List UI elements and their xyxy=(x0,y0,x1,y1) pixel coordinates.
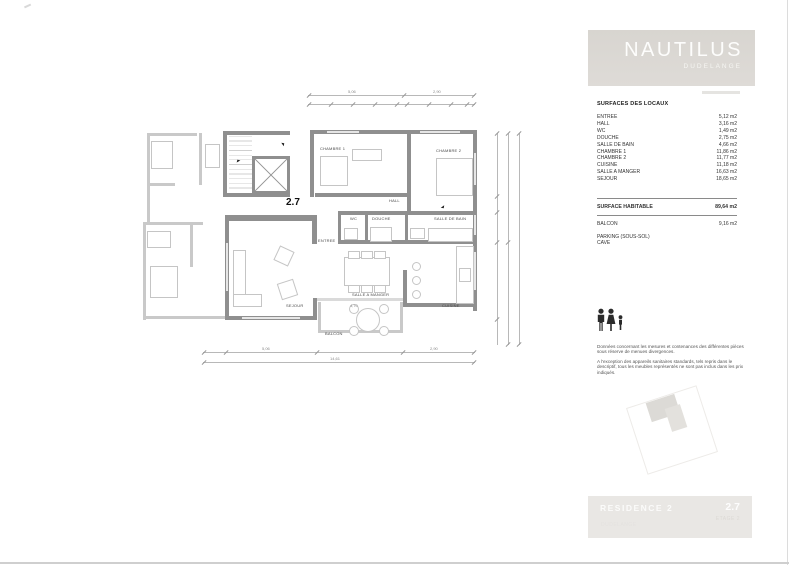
dim-line xyxy=(519,133,520,345)
room-label: CHAMBRE 1 xyxy=(320,146,345,151)
wall-segment xyxy=(405,214,408,240)
room-area: 11,86 m2 xyxy=(717,149,737,156)
table-row: DOUCHE2,75 m2 xyxy=(597,135,737,142)
dim-line xyxy=(308,95,475,96)
wall-segment xyxy=(313,298,317,320)
window xyxy=(327,131,359,134)
room-name: SEJOUR xyxy=(597,176,617,183)
balcony-chair xyxy=(379,326,389,336)
room-name: HALL xyxy=(597,121,610,128)
room-label: HALL xyxy=(389,198,400,203)
wc-fixture xyxy=(344,228,358,240)
table-row: SEJOUR18,65 m2 xyxy=(597,176,737,183)
unit-number: 2.7 xyxy=(725,501,740,513)
neighbour-furniture xyxy=(205,144,220,168)
wall-segment xyxy=(147,133,150,188)
balcony-dim: 4,70 xyxy=(350,303,358,308)
balcony-chair xyxy=(349,326,359,336)
surfaces-table: ENTREE5,12 m2 HALL3,16 m2 WC1,49 m2 DOUC… xyxy=(597,114,737,183)
bed-2 xyxy=(436,158,473,196)
table-row: SALLE A MANGER16,63 m2 xyxy=(597,169,737,176)
dim-label-total: 14,61 xyxy=(330,356,340,361)
kitchen-stool xyxy=(412,290,421,299)
room-area: 2,75 m2 xyxy=(719,135,737,142)
note-paragraph: Données concernant les mesures et conten… xyxy=(597,344,750,355)
residence-label: RESIDENCE 2 xyxy=(600,503,673,513)
wall-segment xyxy=(365,214,368,240)
wall-segment xyxy=(143,222,203,225)
dim-tick xyxy=(472,93,477,98)
kitchen-stool xyxy=(412,262,421,271)
dim-tick xyxy=(472,360,477,365)
dim-label: 2,90 xyxy=(430,346,438,351)
wall-segment xyxy=(147,133,197,136)
room-label: SALLE A MANGER xyxy=(352,292,389,297)
room-label: SALLE DE BAIN xyxy=(434,216,466,221)
room-name: SALLE DE BAIN xyxy=(597,142,634,149)
room-name: WC xyxy=(597,128,605,135)
balcon-row: BALCON9,16 m2 xyxy=(597,221,737,228)
shower-tray xyxy=(370,227,392,242)
room-label: ENTREE xyxy=(318,238,335,243)
wall-segment xyxy=(225,215,317,221)
dim-line xyxy=(497,133,498,345)
window xyxy=(420,131,460,134)
table-row: SALLE DE BAIN4,66 m2 xyxy=(597,142,737,149)
footer-city-label: DUDELANGE xyxy=(601,522,637,528)
wall-segment xyxy=(338,211,341,244)
wall-segment xyxy=(190,222,193,267)
wall-segment xyxy=(147,183,175,186)
kitchen-sink xyxy=(459,268,471,282)
window-wall xyxy=(317,298,403,301)
occupants-icon xyxy=(596,308,636,339)
window xyxy=(474,215,477,235)
habitable-label: SURFACE HABITABLE xyxy=(597,204,653,211)
table-row: CUISINE11,18 m2 xyxy=(597,162,737,169)
footer-bar: RESIDENCE 2 2.7 ETAGE 2 DUDELANGE xyxy=(588,496,752,538)
neighbour-furniture xyxy=(151,141,173,169)
habitable-value: 89,64 m2 xyxy=(715,204,737,211)
wall-segment xyxy=(318,302,321,333)
chair xyxy=(348,251,360,259)
wall-segment xyxy=(223,131,290,135)
chair xyxy=(361,251,373,259)
room-name: CUISINE xyxy=(597,162,617,169)
bed-1 xyxy=(320,156,348,186)
dresser xyxy=(352,149,382,161)
dim-line xyxy=(203,362,475,363)
fine-print-mark xyxy=(702,91,740,94)
wall-segment xyxy=(312,215,317,244)
kitchen-stool xyxy=(412,276,421,285)
wall-segment xyxy=(403,270,407,307)
wall-segment xyxy=(143,222,146,320)
balcon-label: BALCON xyxy=(597,221,618,228)
table-row: CHAMBRE 111,86 m2 xyxy=(597,149,737,156)
dim-tick xyxy=(472,102,477,107)
room-label: BALCON xyxy=(325,331,343,336)
room-name: CHAMBRE 1 xyxy=(597,149,626,156)
dim-label: 5,06 xyxy=(348,89,356,94)
staircase xyxy=(229,136,252,192)
wall-segment xyxy=(407,134,411,215)
room-area: 11,18 m2 xyxy=(717,162,737,169)
armchair xyxy=(277,279,298,300)
room-area: 3,16 m2 xyxy=(719,121,737,128)
scan-edge-right xyxy=(787,0,788,565)
dining-table xyxy=(344,257,390,286)
dim-label: 5,06 xyxy=(262,346,270,351)
floor-label: ETAGE 2 xyxy=(716,516,740,522)
surface-habitable-row: SURFACE HABITABLE89,64 m2 xyxy=(597,198,737,216)
plan-unit-number: 2.7 xyxy=(286,197,300,208)
room-area: 1,49 m2 xyxy=(719,128,737,135)
door-arrow xyxy=(281,143,284,146)
dim-tick xyxy=(472,350,477,355)
wall-segment xyxy=(147,186,150,225)
logo-city: DUDELANGE xyxy=(588,63,755,70)
parking-block: PARKING (SOUS-SOL) CAVE xyxy=(597,234,737,246)
logo-title: NAUTILUS xyxy=(588,30,755,62)
window xyxy=(474,252,477,290)
legal-notes: Données concernant les mesures et conten… xyxy=(597,344,750,379)
dim-line xyxy=(203,352,475,353)
wall-segment xyxy=(143,316,227,319)
balcony-table xyxy=(356,308,380,332)
chair xyxy=(374,251,386,259)
wall-segment xyxy=(310,130,314,197)
elevator-shaft xyxy=(252,156,290,194)
room-label: WC xyxy=(350,216,357,221)
cave-line: CAVE xyxy=(597,240,737,246)
bathtub xyxy=(428,228,473,242)
room-label: DOUCHE xyxy=(372,216,391,221)
room-name: CHAMBRE 2 xyxy=(597,155,626,162)
dim-tick xyxy=(506,342,511,347)
surfaces-title: SURFACES DES LOCAUX xyxy=(597,101,737,107)
room-area: 18,65 m2 xyxy=(716,176,737,183)
sink xyxy=(410,228,425,239)
logo-block: NAUTILUS DUDELANGE xyxy=(588,30,755,86)
wall-segment xyxy=(199,133,202,185)
dim-label: 2,90 xyxy=(433,89,441,94)
sofa xyxy=(233,250,246,296)
room-label: CUISINE xyxy=(442,303,460,308)
window xyxy=(474,153,477,185)
floor-plan: CHAMBRE 1 CHAMBRE 2 HALL WC DOUCHE SALLE… xyxy=(0,0,560,400)
table-row: WC1,49 m2 xyxy=(597,128,737,135)
table-row: HALL3,16 m2 xyxy=(597,121,737,128)
note-paragraph: A l'exception des appareils sanitaires s… xyxy=(597,359,750,375)
window xyxy=(226,243,229,291)
room-label: CHAMBRE 2 xyxy=(436,148,461,153)
room-area: 11,77 m2 xyxy=(717,155,737,162)
room-area: 5,12 m2 xyxy=(719,114,737,121)
room-name: SALLE A MANGER xyxy=(597,169,640,176)
balcon-value: 9,16 m2 xyxy=(719,221,737,228)
window xyxy=(242,317,300,320)
wall-segment xyxy=(223,131,227,197)
room-name: DOUCHE xyxy=(597,135,619,142)
balcony-chair xyxy=(379,304,389,314)
room-area: 4,66 m2 xyxy=(719,142,737,149)
armchair xyxy=(273,245,294,266)
neighbour-furniture xyxy=(150,266,178,298)
wall-segment xyxy=(400,302,403,333)
sofa xyxy=(233,294,262,307)
neighbour-furniture xyxy=(147,231,171,248)
dim-tick xyxy=(517,342,522,347)
door-arrow xyxy=(441,205,444,208)
room-label: SEJOUR xyxy=(286,303,303,308)
wall-segment xyxy=(315,193,411,197)
table-row: ENTREE5,12 m2 xyxy=(597,114,737,121)
room-area: 16,63 m2 xyxy=(716,169,737,176)
table-row: CHAMBRE 211,77 m2 xyxy=(597,155,737,162)
scan-edge-bottom xyxy=(0,562,789,564)
dim-line xyxy=(508,133,509,345)
room-name: ENTREE xyxy=(597,114,617,121)
